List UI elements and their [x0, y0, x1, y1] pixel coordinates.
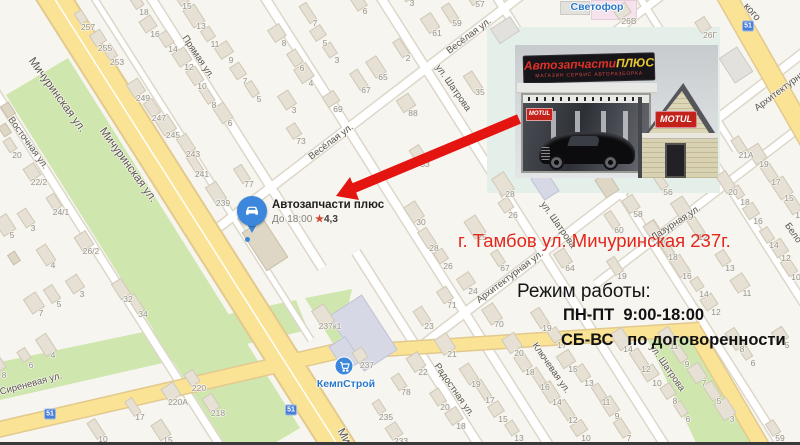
annotation-arrow	[0, 0, 800, 445]
schedule-title: Режим работы:	[517, 281, 651, 303]
address-annotation: г. Тамбов ул. Мичуринская 237г.	[458, 230, 731, 252]
schedule-weekdays: ПН-ПТ 9:00-18:00	[563, 306, 704, 325]
map-canvas[interactable]: 2572552532492472452432412391816141210861…	[0, 0, 800, 445]
schedule-weekend: СБ-ВС по договоренности	[561, 331, 786, 350]
